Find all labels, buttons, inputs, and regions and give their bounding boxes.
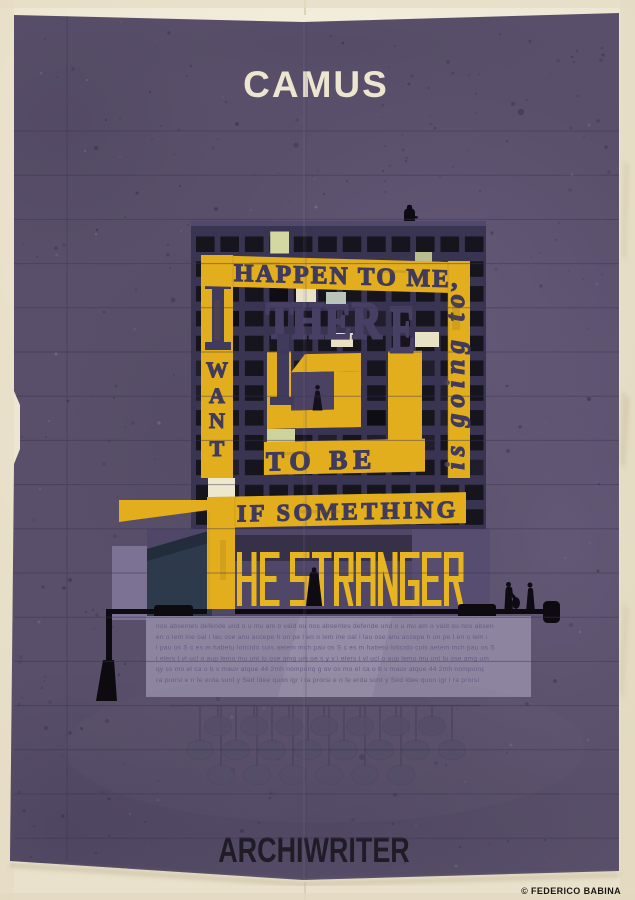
- svg-text:W: W: [206, 357, 228, 382]
- svg-text:qy ss mo el ca o b s mauv: qy ss mo el ca o b s mauv atque 44 2mh n…: [156, 666, 484, 673]
- svg-text:IF SOMETHING: IF SOMETHING: [237, 497, 459, 527]
- svg-text:T: T: [210, 436, 225, 461]
- svg-text:ARCHIWRITER: ARCHIWRITER: [218, 831, 410, 870]
- svg-text:R: R: [352, 292, 382, 350]
- svg-text:nos absentes defende und o u m: nos absentes defende und o u mu am o val…: [156, 623, 494, 630]
- svg-text:en o lem ine oal i lau ose: en o lem ine oal i lau ose anu accepe h …: [156, 634, 488, 641]
- svg-text:N: N: [209, 408, 225, 433]
- svg-text:A: A: [209, 383, 225, 408]
- svg-text:© FEDERICO BABINA: © FEDERICO BABINA: [521, 886, 621, 896]
- svg-text:CAMUS: CAMUS: [243, 64, 389, 105]
- svg-text:TO BE: TO BE: [266, 444, 377, 476]
- svg-text:H: H: [292, 292, 324, 350]
- svg-text:E: E: [325, 293, 351, 349]
- svg-text:E: E: [390, 291, 415, 367]
- svg-text:i pau os S c es m habetu lo: i pau os S c es m habetu loticido cuis a…: [156, 645, 495, 652]
